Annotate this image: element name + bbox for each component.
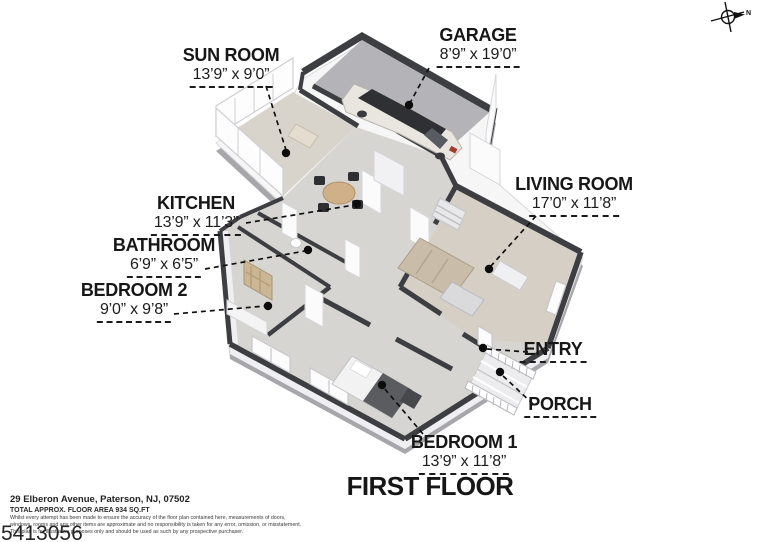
room-label-entry: ENTRY [520,340,587,363]
room-label-kitchen: KITCHEN 13’9” x 11’3” [151,194,241,236]
room-label-sun-room: SUN ROOM 13’9” x 9’0” [183,46,280,88]
leader-dot-bathroom [304,246,312,254]
room-label-bedroom-1: BEDROOM 1 13’9” x 11’8” [411,433,517,475]
room-label-garage: GARAGE 8’9” x 19’0” [437,26,520,68]
room-label-bathroom: BATHROOM 6’9” x 6’5” [113,236,215,278]
leader-dot-porch [496,368,504,376]
room-name: GARAGE [437,26,520,44]
compass-north-label: N [746,10,751,17]
room-name: BATHROOM [113,236,215,254]
room-dims: 6’9” x 6’5” [127,257,201,277]
room-dims: 13’9” x 11’3” [151,215,241,235]
room-name: BEDROOM 1 [411,433,517,451]
room-dims: 8’9” x 19’0” [437,47,520,67]
room-name: SUN ROOM [183,46,280,64]
floor-plan-page: SUN ROOM 13’9” x 9’0” GARAGE 8’9” x 19’0… [0,0,768,542]
room-name: PORCH [524,395,596,418]
compass-icon [711,2,745,32]
watermark-number: 5413056 [1,522,83,542]
leader-dot-bedroom-2 [264,302,272,310]
floor-area-text: TOTAL APPROX. FLOOR AREA 934 SQ.FT [10,507,340,514]
room-label-porch: PORCH [524,395,596,418]
leader-dot-entry [479,344,487,352]
leader-dot-living-room [485,265,493,273]
room-label-living-room: LIVING ROOM 17’0” x 11’8” [515,175,633,217]
room-label-bedroom-2: BEDROOM 2 9’0” x 9’8” [81,281,187,323]
room-name: LIVING ROOM [515,175,633,193]
leader-dot-sun-room [282,149,290,157]
floor-title: FIRST FLOOR [347,471,514,502]
leader-dot-kitchen [353,200,361,208]
room-name: BEDROOM 2 [81,281,187,299]
address-text: 29 Elberon Avenue, Paterson, NJ, 07502 [10,494,340,505]
room-name: KITCHEN [151,194,241,212]
room-dims: 13’9” x 9’0” [190,67,273,87]
room-dims: 9’0” x 9’8” [97,302,171,322]
disclaimer-line-1: Whilst every attempt has been made to en… [10,516,340,522]
leader-dot-bedroom-1 [378,381,386,389]
leader-dot-garage [405,101,413,109]
room-dims: 17’0” x 11’8” [529,196,619,216]
room-name: ENTRY [520,340,587,363]
